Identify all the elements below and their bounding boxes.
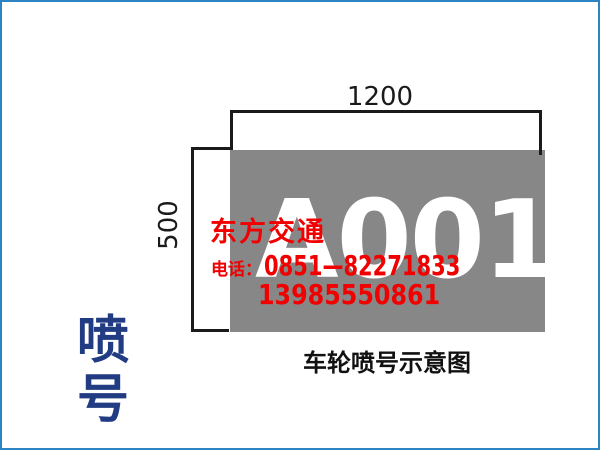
watermark-phone-label: 电话：: [211, 255, 262, 280]
height-dimension-tick-bottom: [191, 329, 229, 332]
vertical-title-char-bottom: 号: [72, 371, 134, 430]
vertical-title-char-top: 喷: [72, 312, 134, 371]
watermark-phone-number-2: 13985550861: [258, 278, 440, 311]
height-dimension-tick-top: [191, 147, 231, 150]
width-dimension-tick-left: [230, 110, 233, 150]
height-dimension-label: 500: [154, 190, 182, 260]
height-dimension-line: [191, 147, 194, 332]
diagram-caption: 车轮喷号示意图: [257, 343, 517, 378]
width-dimension-line: [230, 110, 542, 113]
watermark-company: 东方交通: [210, 210, 326, 249]
page-frame: 喷 号 1200 500 A001 东方交通 电话：0851—82271833 …: [0, 0, 600, 450]
width-dimension-label: 1200: [330, 82, 430, 112]
vertical-title: 喷 号: [72, 312, 134, 430]
width-dimension-tick-right: [539, 110, 542, 155]
